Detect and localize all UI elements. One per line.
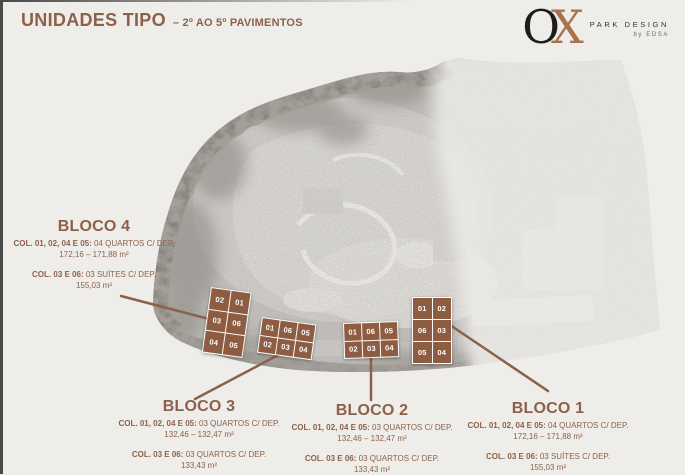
brand-byline: by EDSA (590, 32, 669, 38)
unit-cell: 03 (206, 310, 228, 333)
unit-cell: 04 (381, 340, 399, 357)
brand-name: PARK DESIGN (590, 20, 669, 29)
block-spec-line: COL. 03 E 06: 03 SUÍTES C/ DEP. (8, 269, 180, 280)
block-area-line: 133,43 m² (286, 464, 458, 475)
unit-grid-bloco-2: 010605020304 (343, 321, 399, 359)
page-title: UNIDADES TIPO (21, 10, 166, 31)
block-area-line: 172,16 – 171,88 m² (8, 249, 180, 260)
unit-cell: 04 (294, 340, 313, 359)
block-name: BLOCO 2 (286, 402, 458, 419)
block-name: BLOCO 3 (113, 398, 285, 415)
unit-cell: 03 (363, 340, 381, 357)
block-label-bloco-2: BLOCO 2 COL. 01, 02, 04 E 05: 03 QUARTOS… (286, 402, 458, 475)
block-spec-line: COL. 01, 02, 04 E 05: 04 QUARTOS C/ DEP. (462, 420, 634, 431)
page-frame: UNIDADES TIPO – 2º AO 5º PAVIMENTOS OX P… (0, 0, 685, 474)
unit-grid-bloco-3: 010605020304 (257, 317, 316, 360)
unit-cell: 01 (413, 298, 432, 319)
unit-cell: 03 (433, 320, 452, 341)
unit-cell: 04 (433, 342, 452, 363)
block-label-bloco-1: BLOCO 1 COL. 01, 02, 04 E 05: 04 QUARTOS… (462, 400, 634, 473)
unit-cell: 02 (209, 288, 231, 311)
block-area-line: 133,43 m² (113, 460, 285, 471)
unit-cell: 06 (278, 321, 297, 340)
block-label-bloco-4: BLOCO 4 COL. 01, 02, 04 E 05: 04 QUARTOS… (8, 218, 180, 291)
unit-cell: 05 (223, 334, 245, 357)
block-spec-line: COL. 01, 02, 04 E 05: 03 QUARTOS C/ DEP. (113, 418, 285, 429)
block-name: BLOCO 4 (8, 218, 180, 235)
page-header: UNIDADES TIPO – 2º AO 5º PAVIMENTOS (21, 10, 303, 31)
block-spec-line: COL. 03 E 06: 03 SUÍTES C/ DEP. (462, 451, 634, 462)
block-area-line: 172,16 – 171,88 m² (462, 431, 634, 442)
block-spec-line: COL. 01, 02, 04 E 05: 04 QUARTOS C/ DEP. (8, 238, 180, 249)
unit-cell: 03 (276, 338, 295, 357)
unit-cell: 06 (413, 320, 432, 341)
unit-cell: 01 (229, 291, 251, 314)
block-label-bloco-3: BLOCO 3 COL. 01, 02, 04 E 05: 03 QUARTOS… (113, 398, 285, 471)
unit-cell: 06 (226, 312, 248, 335)
unit-cell: 02 (258, 335, 277, 354)
block-spec-line: COL. 03 E 06: 03 QUARTOS C/ DEP. (286, 453, 458, 464)
block-area-line: 155,03 m² (462, 462, 634, 473)
logo-wordmark: PARK DESIGN by EDSA (590, 4, 669, 38)
unit-cell: 06 (362, 323, 380, 340)
unit-cell: 01 (261, 318, 280, 337)
block-area-line: 155,03 m² (8, 280, 180, 291)
unit-cell: 05 (296, 323, 315, 342)
unit-cell: 02 (433, 298, 452, 319)
block-spec-line: COL. 03 E 06: 03 QUARTOS C/ DEP. (113, 449, 285, 460)
unit-cell: 05 (380, 322, 398, 339)
block-area-line: 132,46 – 132,47 m² (113, 429, 285, 440)
unit-cell: 01 (344, 323, 362, 340)
logo-letter-x: X (551, 4, 584, 50)
brand-logo: OX PARK DESIGN by EDSA (522, 4, 669, 50)
unit-cell: 02 (345, 341, 363, 358)
unit-cell: 04 (203, 331, 225, 354)
page-subtitle: – 2º AO 5º PAVIMENTOS (173, 17, 303, 29)
block-spec-line: COL. 01, 02, 04 E 05: 03 QUARTOS C/ DEP. (286, 422, 458, 433)
logo-monogram: OX (522, 4, 583, 50)
block-name: BLOCO 1 (462, 400, 634, 417)
unit-cell: 05 (413, 342, 432, 363)
unit-grid-bloco-1: 010206030504 (412, 297, 452, 364)
block-area-line: 132,46 – 132,47 m² (286, 433, 458, 444)
